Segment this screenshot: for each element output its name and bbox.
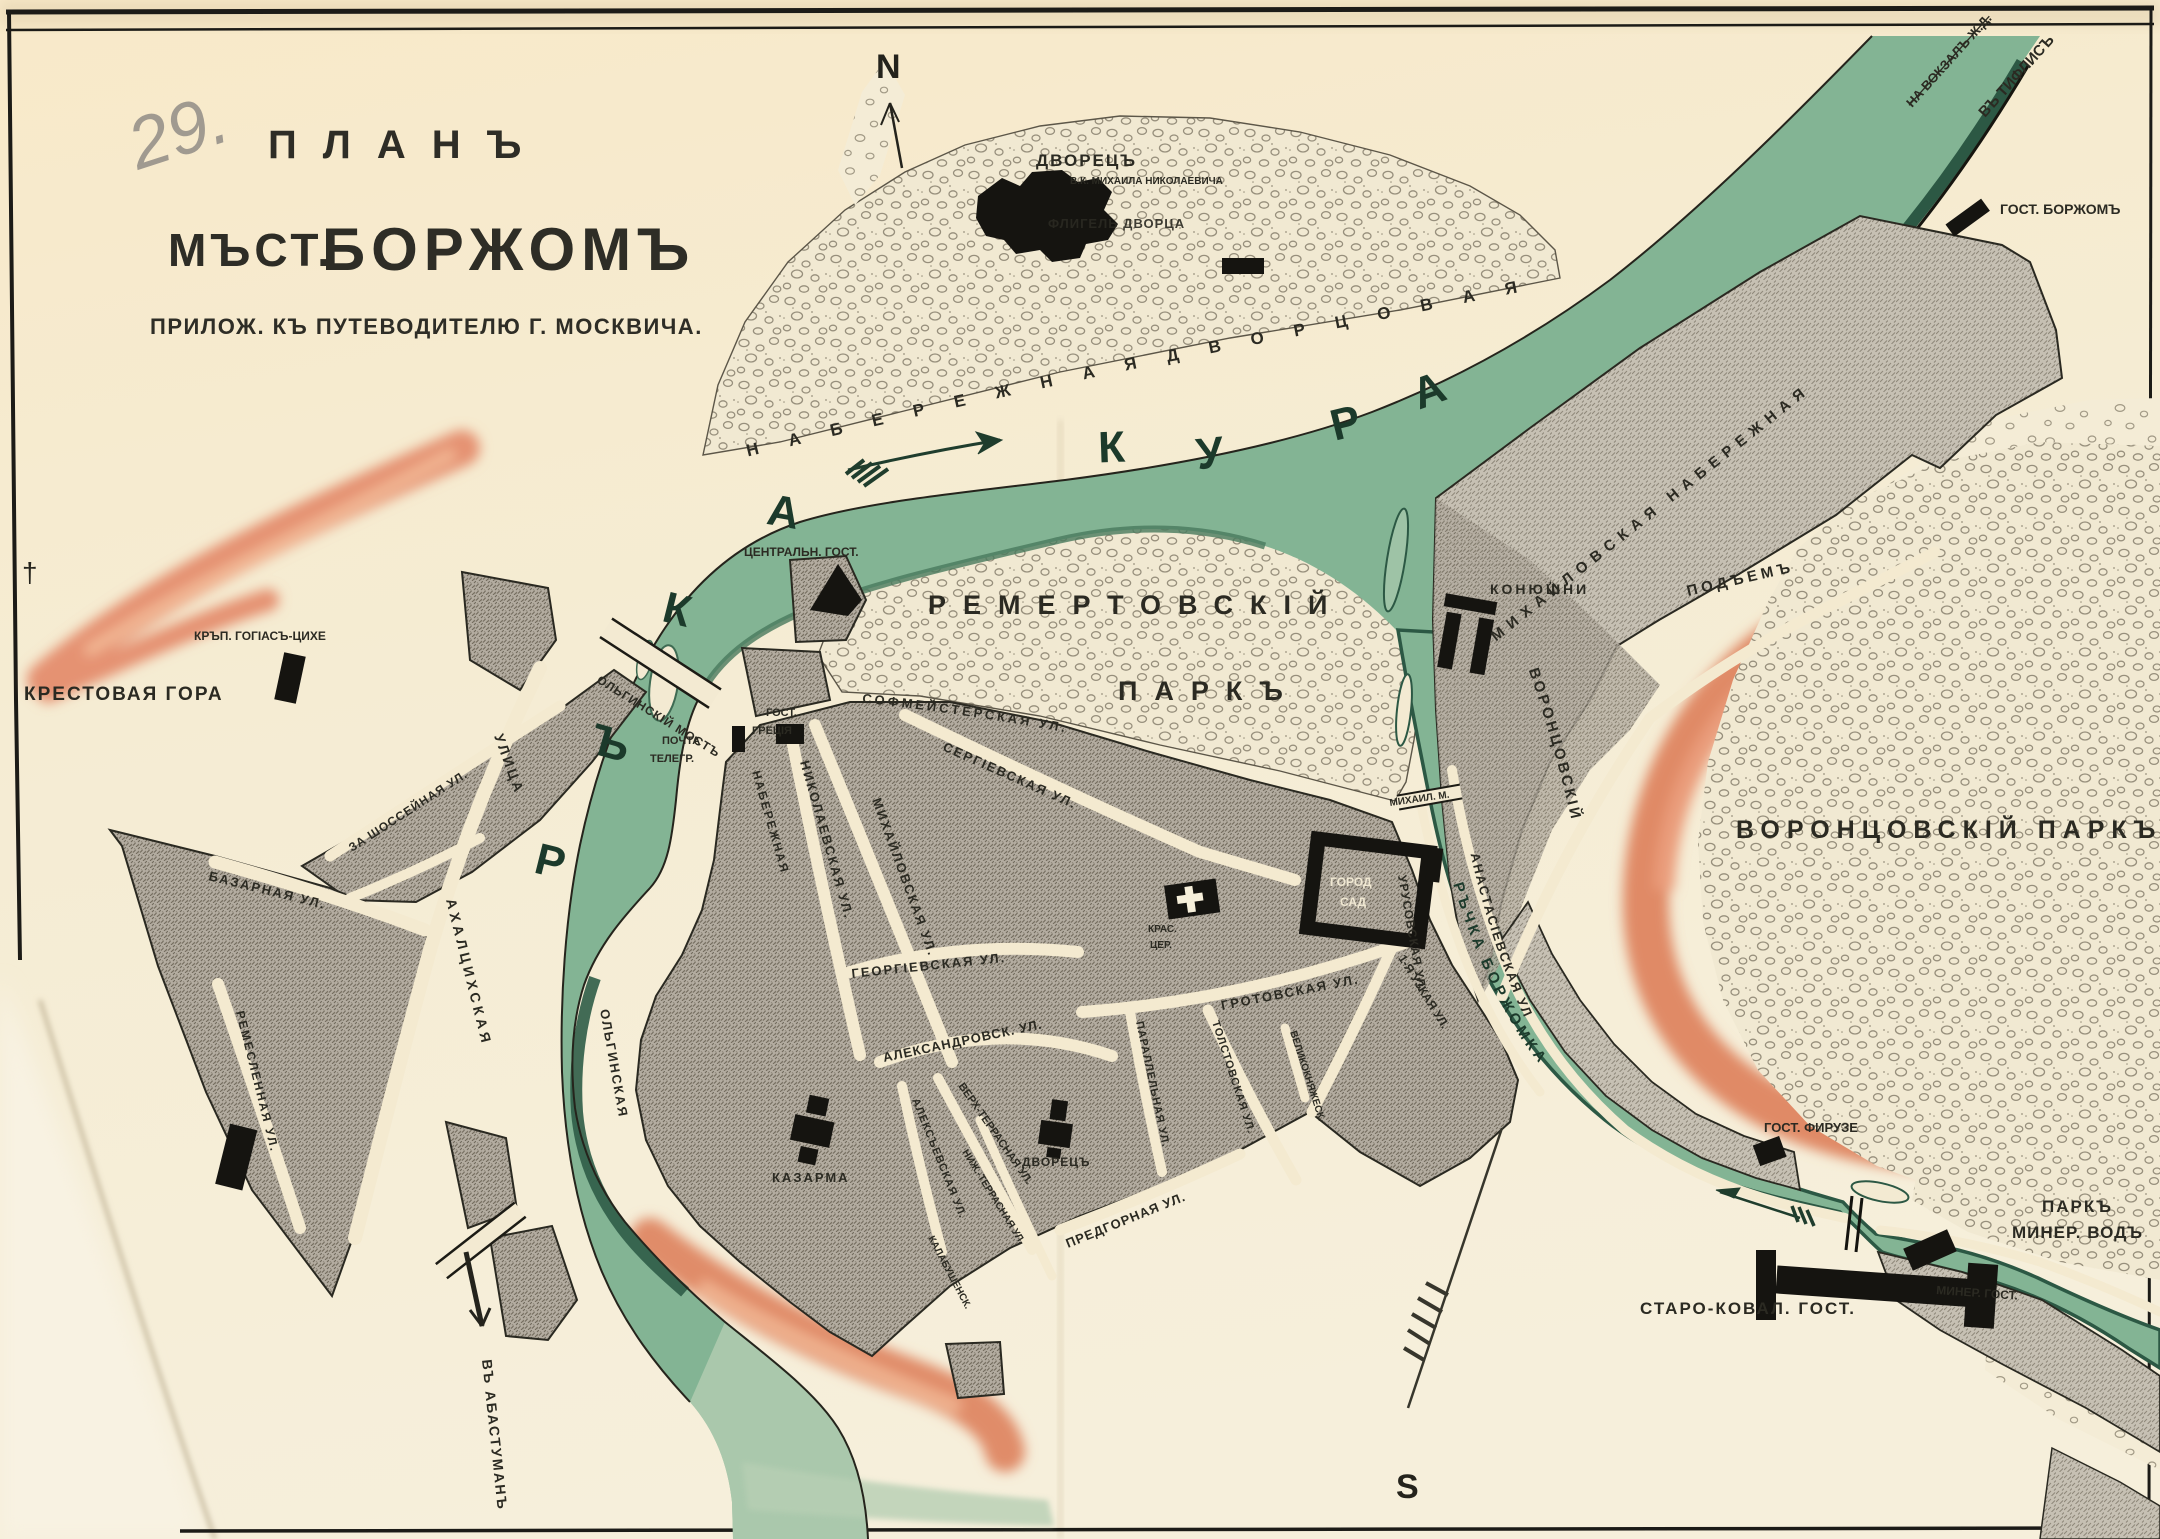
svg-text:БОРЖОМЪ: БОРЖОМЪ xyxy=(322,216,695,283)
svg-text:ПРИЛОЖ. КЪ ПУТЕВОДИТЕЛЮ Г. МОС: ПРИЛОЖ. КЪ ПУТЕВОДИТЕЛЮ Г. МОСКВИЧА. xyxy=(150,314,703,339)
svg-text:МЪСТ.: МЪСТ. xyxy=(168,224,334,276)
svg-text:ЦЕР.: ЦЕР. xyxy=(1150,940,1172,951)
svg-text:КРАС.: КРАС. xyxy=(1148,924,1177,935)
svg-text:СТАРО-КОВАЛ. ГОСТ.: СТАРО-КОВАЛ. ГОСТ. xyxy=(1640,1299,1856,1318)
svg-text:КРЕСТОВАЯ ГОРА: КРЕСТОВАЯ ГОРА xyxy=(24,684,224,705)
svg-text:ДВОРЕЦЪ: ДВОРЕЦЪ xyxy=(1022,1155,1090,1169)
svg-text:ПАРКЪ: ПАРКЪ xyxy=(1118,676,1300,706)
svg-text:S: S xyxy=(1396,1468,1419,1506)
svg-text:МИНЕР. ВОДЪ: МИНЕР. ВОДЪ xyxy=(2012,1223,2143,1242)
svg-text:РЕМЕРТОВСКІЙ: РЕМЕРТОВСКІЙ xyxy=(928,589,1344,620)
svg-text:ГОСТ.: ГОСТ. xyxy=(766,707,797,719)
svg-text:ФЛИГЕЛЬ ДВОРЦА: ФЛИГЕЛЬ ДВОРЦА xyxy=(1048,216,1185,231)
svg-text:КАЗАРМА: КАЗАРМА xyxy=(772,1170,850,1185)
svg-text:САД: САД xyxy=(1340,895,1366,909)
svg-text:У: У xyxy=(1194,428,1227,480)
svg-text:ПАРКЪ: ПАРКЪ xyxy=(2042,1197,2113,1216)
svg-text:В.К. МИХАИЛА НИКОЛАЕВИЧА: В.К. МИХАИЛА НИКОЛАЕВИЧА xyxy=(1070,176,1223,187)
svg-text:ТЕЛЕГР.: ТЕЛЕГР. xyxy=(650,753,694,765)
svg-text:К: К xyxy=(1097,423,1126,473)
svg-text:ВОРОНЦОВСКІЙ ПАРКЪ: ВОРОНЦОВСКІЙ ПАРКЪ xyxy=(1736,814,2160,844)
svg-text:ГОСТ. ФИРУЗЕ: ГОСТ. ФИРУЗЕ xyxy=(1764,1120,1858,1135)
svg-text:ГОРОД: ГОРОД xyxy=(1330,875,1372,889)
svg-text:†: † xyxy=(22,557,38,588)
svg-text:ГОСТ. БОРЖОМЪ: ГОСТ. БОРЖОМЪ xyxy=(2000,201,2120,217)
svg-text:КРЪП. ГОГІАСЪ-ЦИХЕ: КРЪП. ГОГІАСЪ-ЦИХЕ xyxy=(194,629,326,643)
svg-text:ЦЕНТРАЛЬН. ГОСТ.: ЦЕНТРАЛЬН. ГОСТ. xyxy=(744,545,859,559)
svg-text:ДВОРЕЦЪ: ДВОРЕЦЪ xyxy=(1036,151,1137,170)
svg-text:N: N xyxy=(876,48,901,86)
svg-text:КОНЮШНИ: КОНЮШНИ xyxy=(1490,581,1589,597)
svg-text:ПЛАНЪ: ПЛАНЪ xyxy=(268,123,547,167)
svg-text:ГРЕЦІЯ: ГРЕЦІЯ xyxy=(752,725,792,737)
